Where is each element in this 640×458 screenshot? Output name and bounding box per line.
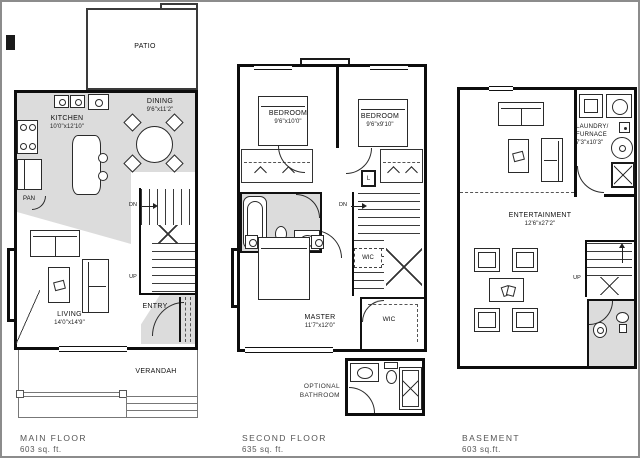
- chair: [512, 248, 538, 272]
- entertainment-label: ENTERTAINMENT 12'6"x27'2": [492, 212, 588, 228]
- loveseat: [541, 138, 563, 182]
- master-window: [245, 347, 333, 353]
- linen-closet: L: [361, 170, 376, 187]
- master-label: MASTER 11'7"x12'0": [288, 314, 352, 330]
- stool-icon: [98, 153, 108, 163]
- bedroom-divider-wall: [336, 64, 339, 148]
- vanity-sink-icon: [350, 363, 379, 382]
- book-icon: [512, 151, 525, 162]
- entry-closet: [179, 297, 195, 342]
- pedestal-sink-base-icon: [619, 324, 627, 333]
- loveseat: [82, 259, 109, 313]
- up-arrowhead-icon: [619, 243, 625, 248]
- basement-window: [489, 86, 513, 91]
- verandah-label: VERANDAH: [126, 368, 186, 376]
- main-floor-area: 603 sq. ft.: [20, 445, 62, 454]
- verandah-rail: [18, 392, 126, 397]
- cards-icon: [506, 285, 516, 297]
- verandah-post: [16, 390, 24, 398]
- stairs-dn-label: DN: [336, 202, 350, 208]
- closet: [380, 149, 423, 183]
- dn-arrowhead-icon: [362, 203, 367, 209]
- stool-icon: [98, 171, 108, 181]
- stair-landing: [141, 225, 195, 243]
- coffee-table: [48, 267, 70, 303]
- stairs-dn-label: DN: [126, 202, 140, 208]
- verandah-steps: [126, 396, 198, 418]
- patio-label: PATIO: [120, 43, 170, 51]
- laundry-wall: [604, 194, 637, 197]
- wic-open-closet: WIC: [354, 248, 382, 268]
- bedroom-window: [370, 65, 408, 70]
- chimney-marker-icon: [6, 35, 15, 50]
- stair-wall: [585, 240, 635, 242]
- washer-icon: [579, 94, 603, 118]
- card-table: [489, 278, 524, 302]
- book-icon: [53, 280, 66, 291]
- bedroom-window: [254, 65, 292, 70]
- linen-label: L: [363, 176, 374, 182]
- furnace-icon: [611, 162, 635, 188]
- dn-arrowhead-icon: [153, 203, 158, 209]
- area-divider-dashed: [460, 192, 574, 193]
- sofa: [498, 102, 544, 126]
- stairs-down-second: [358, 193, 420, 235]
- living-label: LIVING 14'0"x14'9": [42, 311, 97, 327]
- pedestal-sink-icon: [616, 312, 629, 323]
- nightstand: [245, 235, 258, 249]
- wic-room-label: WIC: [372, 317, 406, 323]
- chair: [474, 308, 500, 332]
- side-table: [508, 139, 529, 173]
- water-heater-icon: [611, 137, 633, 159]
- up-arrow: [622, 247, 623, 263]
- fridge-icon: [17, 159, 42, 190]
- floor-plan-canvas: PATIO PAN KITCHEN 10'0"x12'10" DINING 9'…: [0, 0, 640, 458]
- optional-bathroom-label: OPTIONAL BATHROOM: [250, 383, 340, 400]
- sofa: [30, 230, 80, 257]
- basement-caption: BASEMENT: [462, 433, 520, 443]
- second-floor-area: 635 sq. ft.: [242, 445, 284, 454]
- toilet-icon: [593, 322, 607, 338]
- stairs-up-label: UP: [570, 275, 584, 281]
- stairs-down-main: [141, 189, 195, 225]
- stairs-up-basement: [587, 243, 632, 277]
- stair-winders: [386, 240, 422, 294]
- main-floor-caption: MAIN FLOOR: [20, 433, 87, 443]
- wic-label: WIC: [355, 255, 381, 261]
- electrical-panel-icon: [619, 122, 630, 133]
- shower-icon: [399, 367, 422, 410]
- bedroom-left-label: BEDROOM 9'6"x10'0": [258, 110, 318, 126]
- corner-window-seat: [16, 290, 40, 344]
- stairs-up-label: UP: [126, 274, 140, 280]
- dining-label: DINING 9'6"x11'2": [129, 98, 191, 114]
- dryer-icon: [606, 94, 632, 118]
- kitchen-label: KITCHEN 10'0"x12'10": [42, 115, 92, 131]
- nightstand: [311, 235, 324, 249]
- master-bed: [258, 237, 310, 300]
- stair-winders: [587, 277, 632, 295]
- dining-table: [136, 126, 173, 163]
- stair-wall: [139, 293, 197, 295]
- prep-sink-icon: [88, 94, 109, 110]
- chair: [474, 248, 500, 272]
- kitchen-sink-icon: [70, 95, 85, 108]
- kitchen-island: [72, 135, 101, 195]
- basement-area: 603 sq.ft.: [462, 445, 501, 454]
- second-floor-caption: SECOND FLOOR: [242, 433, 327, 443]
- kitchen-sink-icon: [54, 95, 69, 108]
- stove-icon: [17, 120, 38, 154]
- chair: [512, 308, 538, 332]
- bedroom-right-label: BEDROOM 9'6"x9'10": [350, 113, 410, 129]
- toilet-icon: [384, 362, 398, 369]
- stairs-up-main: [152, 243, 195, 293]
- toilet-bowl-icon: [386, 370, 397, 384]
